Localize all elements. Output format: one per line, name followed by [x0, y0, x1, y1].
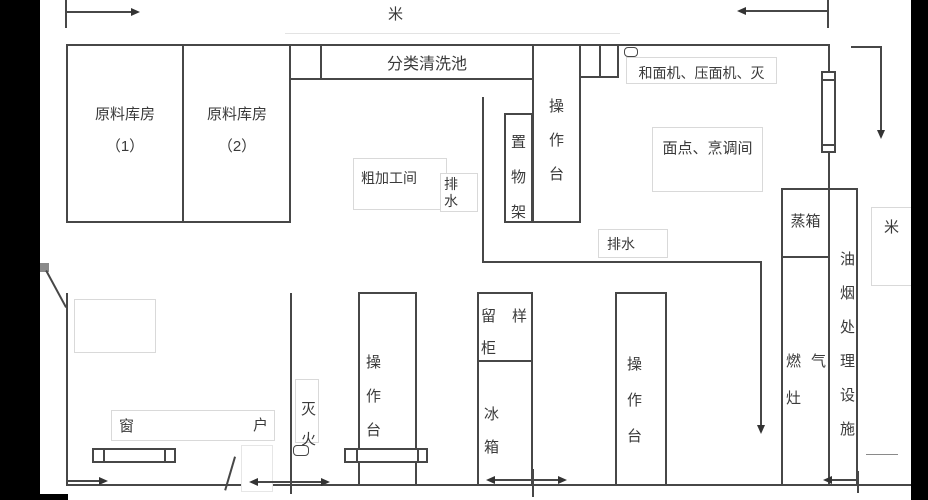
drain-lower-label: 排水 [607, 236, 635, 253]
window-label-left: 窗 [119, 418, 134, 436]
prep-table-middle-label: 操作台 [627, 347, 642, 455]
window-label-box [111, 410, 275, 441]
wall-interior-vertical [290, 293, 292, 486]
drain-upper-label: 排水 [444, 176, 458, 210]
scale-right-label: 米 [871, 219, 912, 237]
pastry-cooking-label: 面点、烹调间 [652, 140, 763, 158]
bottom-tick-3 [857, 471, 859, 493]
flow-line-vertical-2 [760, 261, 762, 427]
fire-extinguisher-symbol [293, 445, 309, 456]
dim-tick-top-right [827, 0, 829, 28]
right-l-arrow-down-icon [877, 130, 885, 139]
small-cell-line-1 [599, 46, 601, 78]
right-wall-door-symbol [821, 71, 836, 153]
flow-line-horizontal [482, 261, 762, 263]
rough-processing-label: 粗加工间 [361, 170, 417, 187]
storage-room-2-number: （2） [184, 138, 290, 156]
storage-room-2-name: 原料库房 [184, 106, 290, 124]
right-l-arrow-horizontal [851, 46, 882, 48]
fume-treatment-label: 油烟处理设施 [840, 243, 855, 447]
wall-bottom-left-segment [66, 484, 241, 486]
bottom-double-arrow-2-line [494, 479, 560, 481]
steamer-label: 蒸箱 [781, 213, 830, 231]
storage-room-1-number: （1） [68, 138, 182, 156]
outlet-symbol [624, 47, 638, 57]
small-cell-line-2 [617, 46, 619, 78]
floor-plan-canvas: 原料库房 （1） 原料库房 （2） 分类清洗池 操作台 和面机、压面机、灭 置物… [0, 0, 928, 500]
scale-top-label: 米 [388, 6, 403, 24]
window-symbol-left-cap1 [103, 448, 105, 463]
faint-line [285, 33, 620, 34]
bottom-arrow-left-line [67, 480, 103, 482]
dim-tick-top-left [65, 0, 67, 28]
prep-table-top-label: 操作台 [549, 90, 564, 192]
prep-table-left-label: 操作台 [366, 346, 381, 448]
prep-table-base-cap2 [417, 448, 419, 463]
bottom-double-arrow-2-left-icon [486, 476, 495, 484]
sample-cabinet-label: 留样柜 [481, 301, 545, 365]
flow-line-vertical-1 [482, 97, 484, 263]
dim-arrow-top-right-line [746, 10, 828, 12]
dim-arrow-top-right-icon [737, 7, 746, 15]
letterbox-left [0, 0, 40, 500]
bottom-tick-2 [532, 469, 534, 497]
prep-table-base-cap1 [356, 448, 358, 463]
diagonal-line [45, 270, 67, 308]
door-symbol-cap-top [821, 79, 836, 81]
bottom-arrow-right-line [831, 479, 858, 481]
letterbox-bottom-corner [0, 494, 68, 500]
bottom-double-arrow-1-line [257, 481, 323, 483]
gas-stove-label: 燃气灶 [786, 343, 838, 417]
right-l-arrow-vertical [880, 46, 882, 132]
storage-rack-label: 置物架 [511, 125, 526, 230]
bottom-arrow-left-icon [99, 477, 108, 485]
right-tick-line [866, 454, 898, 455]
bottom-double-arrow-2-right-icon [558, 476, 567, 484]
storage-rooms-box [66, 44, 291, 223]
storage-rooms-divider [182, 46, 184, 221]
steamer-divider [781, 256, 830, 258]
bottom-double-arrow-1-left-icon [249, 478, 258, 486]
wash-pool-bottom-line [290, 78, 533, 80]
bottom-arrow-right-icon [823, 476, 832, 484]
empty-label-box [74, 299, 156, 353]
letterbox-right [911, 0, 928, 500]
door-symbol-cap-bottom [821, 144, 836, 146]
wash-pool-label: 分类清洗池 [322, 55, 532, 74]
wall-left-lower [66, 293, 68, 486]
flow-arrow-down-icon [757, 425, 765, 434]
machines-label: 和面机、压面机、灭 [626, 65, 777, 82]
window-label-right: 户 [253, 417, 268, 435]
refrigerator-label: 冰箱 [484, 398, 499, 464]
window-symbol-left-cap2 [164, 448, 166, 463]
pastry-cooking-box [652, 127, 763, 192]
small-cell-bottom [581, 76, 619, 78]
bottom-double-arrow-1-right-icon [321, 478, 330, 486]
dim-arrow-top-left-icon [131, 8, 140, 16]
storage-room-1-name: 原料库房 [68, 106, 182, 124]
dim-arrow-top-left-line [66, 11, 133, 13]
